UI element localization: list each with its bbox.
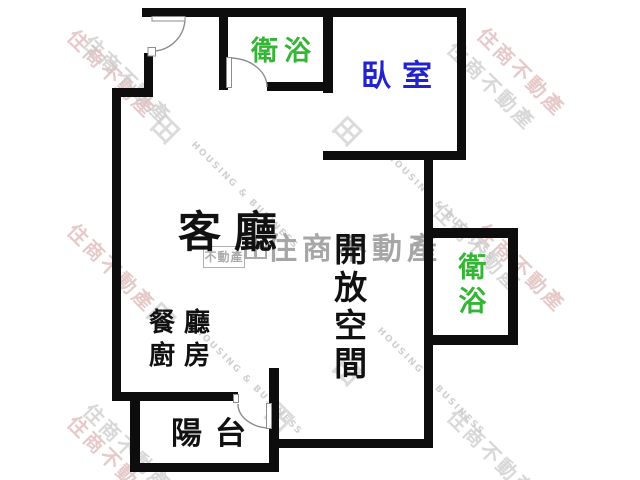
balcony-door-leaf <box>267 404 272 429</box>
label-kitchen-line: 廚房 <box>149 340 219 373</box>
label-bathroom-right: 衛浴 <box>456 252 485 320</box>
floor-plan: 不動產 住商不動產 住商不動產住商不動產住商不動產住商不動產住商不動產住商不動產… <box>0 0 640 480</box>
label-balcony: 陽台 <box>171 418 259 451</box>
label-bathroom-top: 衛浴 <box>251 38 317 66</box>
label-dining-kitchen: 餐廳 廚房 <box>149 307 219 373</box>
bath-door-leaf <box>227 58 232 88</box>
entry-door-leaf <box>152 17 185 22</box>
door-swings <box>0 0 640 480</box>
label-open-space: 開放空間 <box>330 232 365 384</box>
label-bedroom: 臥室 <box>361 61 443 93</box>
entry-door-jamb <box>148 48 156 57</box>
label-dining-line: 餐廳 <box>149 307 219 340</box>
balcony-door-jamb <box>234 395 239 403</box>
label-living-room: 客廳 <box>178 211 290 256</box>
entry-door-arc <box>152 18 185 51</box>
